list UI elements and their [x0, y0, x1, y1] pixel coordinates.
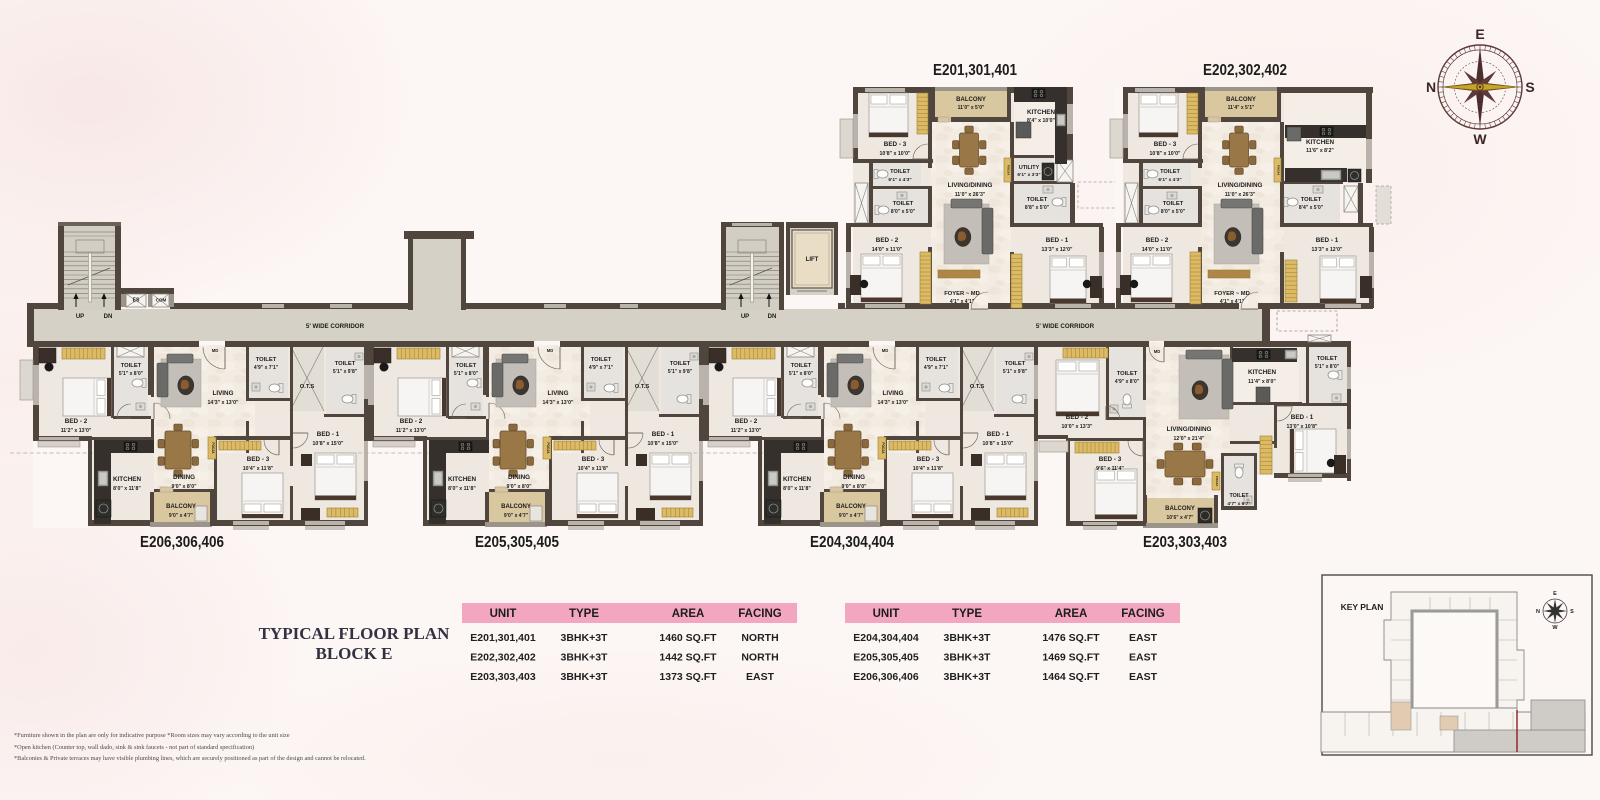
svg-text:*Furniture shown in the plan a: *Furniture shown in the plan are only fo… — [14, 732, 290, 739]
svg-text:DINING: DINING — [173, 474, 195, 481]
svg-text:10’6" x 4’7": 10’6" x 4’7" — [1167, 515, 1195, 521]
svg-text:14’3" x 13’0": 14’3" x 13’0" — [878, 400, 909, 406]
svg-text:4’9" x 7’1": 4’9" x 7’1" — [254, 365, 279, 371]
svg-text:1464 SQ.FT: 1464 SQ.FT — [1042, 671, 1100, 683]
svg-text:DN: DN — [768, 314, 777, 320]
svg-text:E206,306,406: E206,306,406 — [140, 534, 224, 551]
svg-text:5’1" x 9’8": 5’1" x 9’8" — [668, 369, 693, 375]
svg-text:ES: ES — [133, 298, 140, 304]
svg-text:11’6" x 8’2": 11’6" x 8’2" — [1306, 148, 1334, 154]
svg-text:14’0" x 11’0": 14’0" x 11’0" — [1142, 247, 1173, 253]
svg-text:11’0" x 26’3": 11’0" x 26’3" — [1225, 192, 1256, 198]
svg-text:4’9" x 8’0": 4’9" x 8’0" — [1115, 379, 1140, 385]
svg-text:TYPE: TYPE — [952, 608, 982, 620]
svg-text:FACING: FACING — [1121, 608, 1165, 620]
svg-text:TOILET: TOILET — [1117, 371, 1138, 377]
svg-text:LIVING: LIVING — [213, 390, 234, 397]
svg-text:5’1" x 8’0": 5’1" x 8’0" — [119, 371, 144, 377]
svg-text:BED - 2: BED - 2 — [65, 418, 88, 425]
svg-text:KITCHEN: KITCHEN — [1248, 369, 1276, 376]
svg-text:KEY PLAN: KEY PLAN — [1341, 602, 1384, 612]
svg-text:BLOCK E: BLOCK E — [316, 644, 393, 663]
svg-text:4’1" x 4’1": 4’1" x 4’1" — [950, 299, 975, 305]
svg-text:BED - 3: BED - 3 — [582, 456, 605, 463]
svg-text:3BHK+3T: 3BHK+3T — [561, 671, 609, 683]
svg-text:KITCHEN: KITCHEN — [113, 476, 141, 483]
svg-text:BED - 1: BED - 1 — [652, 431, 675, 438]
svg-text:4’1" x 4’1": 4’1" x 4’1" — [1220, 299, 1245, 305]
svg-text:10’8" x 15’0": 10’8" x 15’0" — [983, 441, 1014, 447]
svg-text:W: W — [1473, 131, 1487, 147]
svg-text:FACING: FACING — [738, 608, 782, 620]
svg-text:14’3" x 13’0": 14’3" x 13’0" — [543, 400, 574, 406]
svg-text:KITCHEN: KITCHEN — [1306, 139, 1334, 146]
svg-text:W: W — [1552, 625, 1558, 631]
svg-text:BED - 2: BED - 2 — [400, 418, 423, 425]
svg-text:TOILET: TOILET — [256, 357, 277, 363]
svg-text:3BHK+3T: 3BHK+3T — [561, 652, 609, 664]
svg-text:NORTH: NORTH — [741, 632, 778, 644]
svg-text:TOILET: TOILET — [335, 361, 356, 367]
svg-text:UNIT: UNIT — [490, 608, 517, 620]
svg-text:KITCHEN: KITCHEN — [1027, 109, 1055, 116]
svg-text:EAST: EAST — [1129, 632, 1158, 644]
svg-text:POOJA: POOJA — [1277, 165, 1281, 176]
svg-text:TOILET: TOILET — [890, 169, 910, 175]
svg-text:9’0" x 4’7": 9’0" x 4’7" — [839, 513, 864, 519]
svg-text:TOILET: TOILET — [791, 363, 812, 369]
svg-text:6’1" x 3’3": 6’1" x 3’3" — [1017, 172, 1040, 178]
svg-text:UP: UP — [741, 314, 749, 320]
svg-text:S: S — [1525, 79, 1534, 95]
svg-text:O.T.S: O.T.S — [635, 384, 650, 390]
svg-text:14’3" x 13’0": 14’3" x 13’0" — [208, 400, 239, 406]
svg-text:6’1" x 4’3": 6’1" x 4’3" — [1158, 177, 1181, 183]
svg-text:10’8" x 15’0": 10’8" x 15’0" — [648, 441, 679, 447]
svg-text:5’1" x 9’8": 5’1" x 9’8" — [333, 369, 358, 375]
svg-text:BED - 2: BED - 2 — [1146, 237, 1169, 244]
svg-text:POOJA: POOJA — [881, 442, 885, 454]
svg-text:TOILET: TOILET — [1229, 493, 1249, 499]
svg-text:9’0" x 8’0": 9’0" x 8’0" — [841, 484, 867, 490]
svg-text:UNIT: UNIT — [873, 608, 900, 620]
svg-text:BED - 3: BED - 3 — [1099, 456, 1122, 463]
svg-text:9’6" x 11’4": 9’6" x 11’4" — [1096, 466, 1124, 472]
svg-text:BED - 3: BED - 3 — [917, 456, 940, 463]
svg-text:8’0" x 5’0": 8’0" x 5’0" — [891, 209, 916, 215]
svg-text:NORTH: NORTH — [741, 652, 778, 664]
svg-text:BED - 1: BED - 1 — [987, 431, 1010, 438]
svg-text:9’0" x 4’7": 9’0" x 4’7" — [169, 513, 194, 519]
svg-text:LIVING: LIVING — [548, 390, 569, 397]
svg-text:10’8" x 10’0": 10’8" x 10’0" — [1150, 151, 1181, 157]
svg-text:BED - 1: BED - 1 — [1316, 237, 1339, 244]
svg-text:BALCONY: BALCONY — [956, 97, 986, 103]
svg-text:N: N — [1426, 79, 1436, 95]
svg-text:AREA: AREA — [1055, 608, 1088, 620]
svg-text:4’9" x 7’1": 4’9" x 7’1" — [924, 365, 949, 371]
svg-text:13’3" x 12’0": 13’3" x 12’0" — [1042, 247, 1073, 253]
svg-text:4’7" x 6’7": 4’7" x 6’7" — [1227, 501, 1250, 507]
svg-text:UTILITY: UTILITY — [1019, 165, 1040, 171]
svg-text:9’0" x 8’0": 9’0" x 8’0" — [506, 484, 532, 490]
svg-text:13’3" x 12’0": 13’3" x 12’0" — [1312, 247, 1343, 253]
svg-text:11’0" x 5’0": 11’0" x 5’0" — [958, 105, 985, 111]
svg-text:E: E — [1475, 26, 1484, 42]
svg-text:12’0" x 21’4": 12’0" x 21’4" — [1174, 436, 1205, 442]
svg-text:TOILET: TOILET — [591, 357, 612, 363]
svg-text:TOILET: TOILET — [1027, 197, 1048, 203]
svg-text:BED - 1: BED - 1 — [1291, 414, 1314, 421]
svg-text:BED - 1: BED - 1 — [1046, 237, 1069, 244]
svg-text:BED - 3: BED - 3 — [1154, 141, 1177, 148]
svg-text:DINING: DINING — [843, 474, 865, 481]
svg-text:3BHK+3T: 3BHK+3T — [944, 652, 992, 664]
svg-text:6’1" x 4’3": 6’1" x 4’3" — [888, 177, 911, 183]
svg-text:E203,303,403: E203,303,403 — [1143, 534, 1227, 551]
svg-text:8’8" x 5’0": 8’8" x 5’0" — [1025, 205, 1050, 211]
svg-text:LIVING/DINING: LIVING/DINING — [948, 182, 993, 189]
svg-text:4’9" x 7’1": 4’9" x 7’1" — [589, 365, 614, 371]
svg-text:8’0" x 11’8": 8’0" x 11’8" — [448, 486, 476, 492]
svg-text:11’4" x 8’0": 11’4" x 8’0" — [1248, 379, 1276, 385]
svg-text:BED - 2: BED - 2 — [1066, 414, 1089, 421]
svg-text:5’1" x 8’0": 5’1" x 8’0" — [789, 371, 814, 377]
svg-text:DN: DN — [104, 314, 113, 320]
svg-text:MD: MD — [1154, 349, 1161, 354]
svg-text:EAST: EAST — [1129, 652, 1158, 664]
svg-text:O.T.S: O.T.S — [970, 384, 985, 390]
svg-text:10’4" x 11’8": 10’4" x 11’8" — [243, 466, 274, 472]
svg-text:TYPE: TYPE — [569, 608, 599, 620]
svg-text:O.T.S: O.T.S — [300, 384, 315, 390]
svg-text:E203,303,403: E203,303,403 — [470, 671, 536, 683]
svg-text:E205,305,405: E205,305,405 — [853, 652, 919, 664]
svg-text:MD: MD — [212, 348, 219, 353]
svg-text:10’4" x 11’8": 10’4" x 11’8" — [578, 466, 609, 472]
svg-text:POOJA: POOJA — [546, 442, 550, 454]
svg-text:DINING: DINING — [508, 474, 530, 481]
svg-text:TOILET: TOILET — [456, 363, 477, 369]
svg-text:KITCHEN: KITCHEN — [448, 476, 476, 483]
svg-text:KITCHEN: KITCHEN — [783, 476, 811, 483]
svg-text:MD: MD — [547, 348, 554, 353]
svg-text:5’1" x 8’0": 5’1" x 8’0" — [1315, 364, 1340, 370]
svg-text:E202,302,402: E202,302,402 — [1203, 62, 1287, 79]
svg-text:FOYER ~ MD: FOYER ~ MD — [944, 291, 980, 297]
svg-text:TOILET: TOILET — [1301, 197, 1322, 203]
svg-text:9’0" x 8’0": 9’0" x 8’0" — [171, 484, 197, 490]
svg-text:TOILET: TOILET — [1163, 201, 1184, 207]
svg-text:*Open kitchen (Counter top, wa: *Open kitchen (Counter top, wall dado, s… — [14, 744, 254, 751]
svg-text:E202,302,402: E202,302,402 — [470, 652, 536, 664]
svg-text:3BHK+3T: 3BHK+3T — [561, 632, 609, 644]
svg-text:LIVING: LIVING — [883, 390, 904, 397]
svg-text:8’0" x 5’0": 8’0" x 5’0" — [1161, 209, 1186, 215]
svg-text:13’0" x 10’8": 13’0" x 10’8" — [1287, 424, 1318, 430]
svg-text:EAST: EAST — [746, 671, 775, 683]
svg-text:AREA: AREA — [672, 608, 705, 620]
svg-text:5’1" x 9’8": 5’1" x 9’8" — [1003, 369, 1028, 375]
svg-text:BALCONY: BALCONY — [501, 504, 531, 510]
svg-text:TOILET: TOILET — [1317, 356, 1338, 362]
svg-text:E201,301,401: E201,301,401 — [933, 62, 1017, 79]
svg-text:TOILET: TOILET — [1005, 361, 1026, 367]
svg-text:8’0" x 11’8": 8’0" x 11’8" — [783, 486, 811, 492]
svg-text:1373 SQ.FT: 1373 SQ.FT — [659, 671, 717, 683]
svg-text:FOYER ~ MD: FOYER ~ MD — [1214, 291, 1250, 297]
svg-text:COM: COM — [156, 298, 167, 303]
svg-text:3BHK+3T: 3BHK+3T — [944, 632, 992, 644]
svg-text:10’0" x 13’3": 10’0" x 13’3" — [1062, 424, 1093, 430]
svg-text:BED - 3: BED - 3 — [884, 141, 907, 148]
svg-text:11’0" x 26’3": 11’0" x 26’3" — [955, 192, 986, 198]
svg-text:10’8" x 15’0": 10’8" x 15’0" — [313, 441, 344, 447]
svg-text:TYPICAL FLOOR PLAN: TYPICAL FLOOR PLAN — [259, 624, 451, 643]
svg-text:10’4" x 11’8": 10’4" x 11’8" — [913, 466, 944, 472]
svg-text:LIFT: LIFT — [806, 257, 819, 263]
svg-text:E205,305,405: E205,305,405 — [475, 534, 559, 551]
svg-text:1476 SQ.FT: 1476 SQ.FT — [1042, 632, 1100, 644]
svg-text:BED - 2: BED - 2 — [735, 418, 758, 425]
svg-text:N: N — [1536, 609, 1540, 615]
svg-text:BALCONY: BALCONY — [166, 504, 196, 510]
svg-text:E204,304,404: E204,304,404 — [853, 632, 919, 644]
svg-text:LIVING/DINING: LIVING/DINING — [1218, 182, 1263, 189]
svg-text:E: E — [1553, 591, 1557, 597]
svg-text:POOJA: POOJA — [211, 442, 215, 454]
svg-text:UP: UP — [76, 314, 84, 320]
svg-text:S: S — [1570, 609, 1574, 615]
svg-text:10’8" x 10’0": 10’8" x 10’0" — [880, 151, 911, 157]
svg-text:MD: MD — [882, 348, 889, 353]
svg-text:BED - 1: BED - 1 — [317, 431, 340, 438]
svg-text:BALCONY: BALCONY — [836, 504, 866, 510]
svg-text:1460 SQ.FT: 1460 SQ.FT — [659, 632, 717, 644]
svg-text:POOJA: POOJA — [1007, 165, 1011, 176]
svg-text:TOILET: TOILET — [670, 361, 691, 367]
svg-text:8’4" x 10’0": 8’4" x 10’0" — [1027, 118, 1056, 124]
svg-text:8’0" x 11’8": 8’0" x 11’8" — [113, 486, 141, 492]
svg-text:9’0" x 4’7": 9’0" x 4’7" — [504, 513, 529, 519]
svg-text:*Balconies & Private terraces: *Balconies & Private terraces may have v… — [14, 755, 366, 762]
svg-text:11’2" x 13’0": 11’2" x 13’0" — [396, 428, 427, 434]
svg-text:POOJA: POOJA — [1215, 476, 1219, 487]
svg-text:EAST: EAST — [1129, 671, 1158, 683]
svg-text:TOILET: TOILET — [1160, 169, 1180, 175]
svg-text:11’2" x 13’0": 11’2" x 13’0" — [731, 428, 762, 434]
svg-text:BED - 2: BED - 2 — [876, 237, 899, 244]
svg-text:TOILET: TOILET — [926, 357, 947, 363]
svg-text:5' WIDE CORRIDOR: 5' WIDE CORRIDOR — [306, 323, 365, 330]
svg-text:E204,304,404: E204,304,404 — [810, 534, 894, 551]
svg-text:5' WIDE CORRIDOR: 5' WIDE CORRIDOR — [1036, 323, 1095, 330]
svg-text:5’1" x 8’0": 5’1" x 8’0" — [454, 371, 479, 377]
svg-text:BED - 3: BED - 3 — [247, 456, 270, 463]
svg-text:BALCONY: BALCONY — [1226, 97, 1256, 103]
svg-text:11’4" x 5’1": 11’4" x 5’1" — [1228, 105, 1255, 111]
svg-text:BALCONY: BALCONY — [1165, 506, 1195, 512]
svg-text:1469 SQ.FT: 1469 SQ.FT — [1042, 652, 1100, 664]
svg-text:LIVING/DINING: LIVING/DINING — [1167, 426, 1212, 433]
svg-text:TOILET: TOILET — [121, 363, 142, 369]
svg-text:E201,301,401: E201,301,401 — [470, 632, 536, 644]
svg-text:E206,306,406: E206,306,406 — [853, 671, 919, 683]
svg-text:14’0" x 11’0": 14’0" x 11’0" — [872, 247, 903, 253]
svg-text:1442 SQ.FT: 1442 SQ.FT — [659, 652, 717, 664]
svg-text:3BHK+3T: 3BHK+3T — [944, 671, 992, 683]
svg-text:8’4" x 5’0": 8’4" x 5’0" — [1299, 205, 1324, 211]
svg-text:11’2" x 13’0": 11’2" x 13’0" — [61, 428, 92, 434]
svg-text:TOILET: TOILET — [893, 201, 914, 207]
